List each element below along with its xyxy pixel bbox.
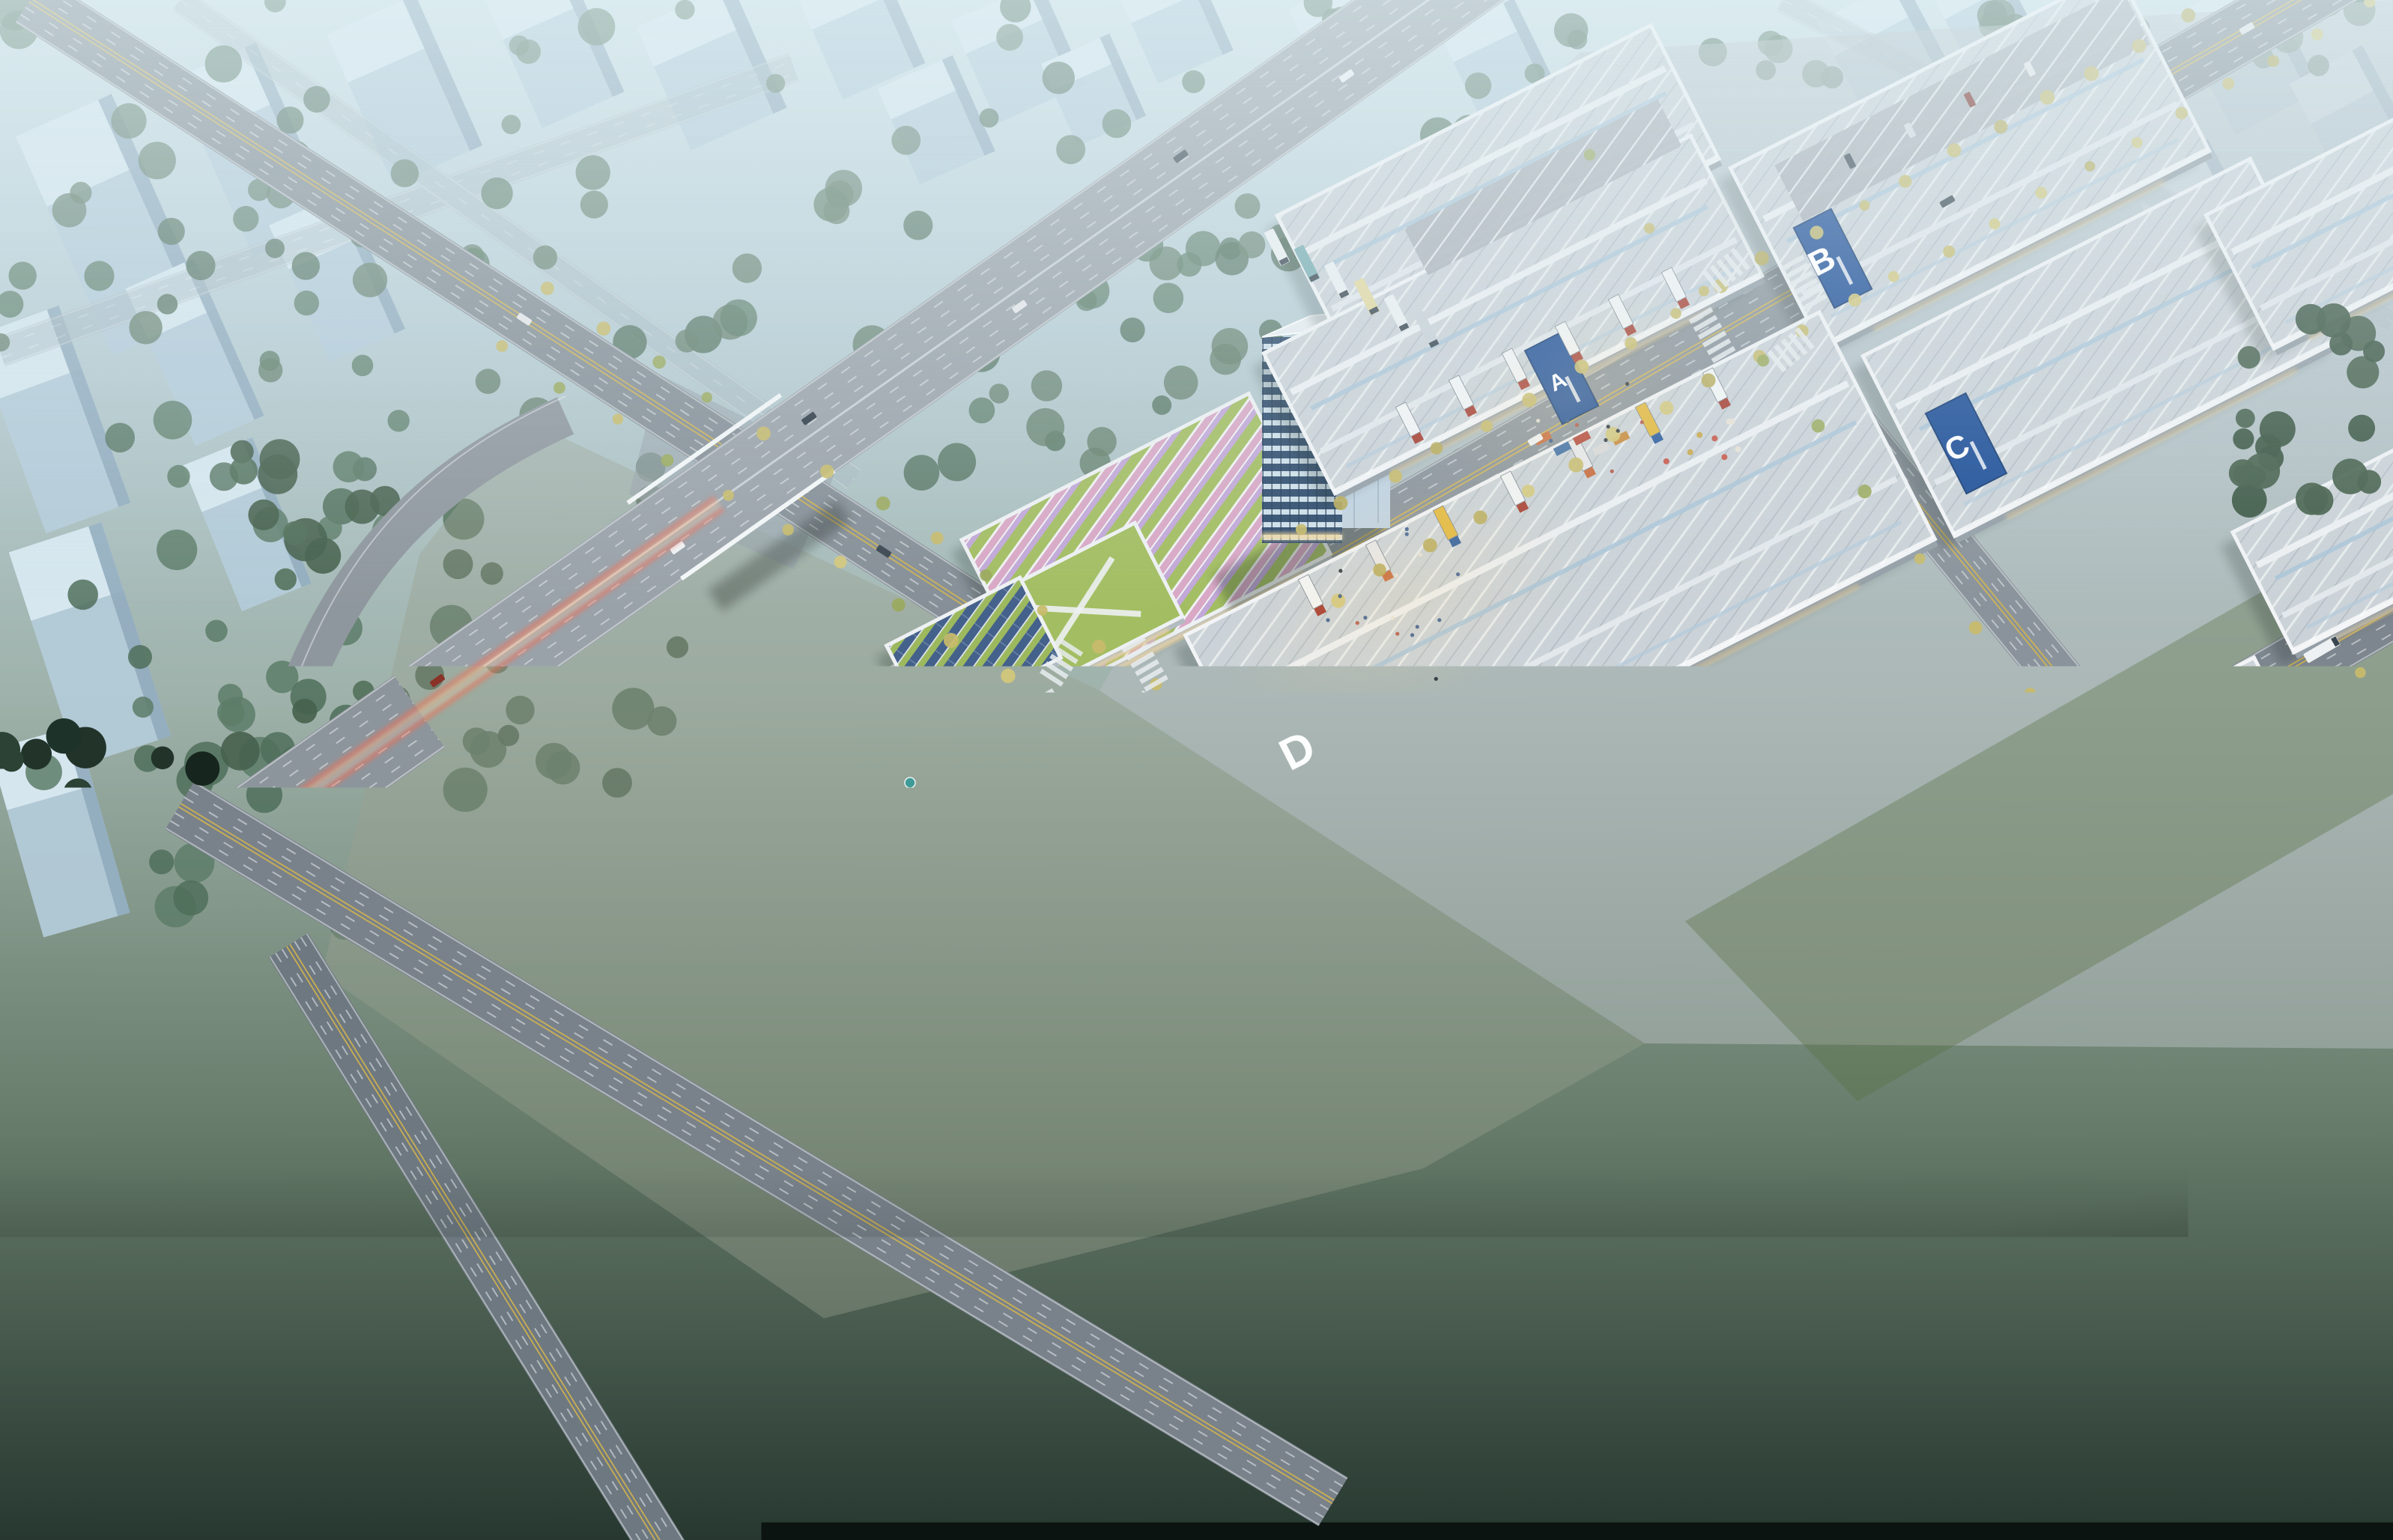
tree	[980, 753, 990, 763]
tree	[341, 938, 356, 953]
tree	[267, 900, 282, 915]
tree	[2023, 859, 2036, 872]
tree	[834, 834, 844, 844]
tree	[2355, 667, 2365, 678]
tree	[1926, 1033, 1947, 1054]
tree	[1656, 1003, 1668, 1015]
tree	[1556, 1030, 1568, 1043]
tree	[1963, 1102, 1991, 1130]
tree	[178, 976, 213, 1011]
tree	[1543, 933, 1553, 943]
tree	[46, 718, 82, 754]
tree	[1980, 1043, 2016, 1079]
tree	[204, 1088, 260, 1144]
tree	[1354, 1107, 1375, 1128]
tree	[1969, 621, 1983, 634]
tree	[255, 1032, 280, 1057]
tree	[1807, 991, 1818, 1001]
tree	[2294, 703, 2306, 715]
tree	[1705, 1040, 1720, 1055]
tree	[213, 987, 241, 1016]
tree	[2075, 831, 2088, 844]
tree	[1595, 968, 1608, 982]
tree	[1860, 954, 1875, 968]
tree	[1642, 1082, 1657, 1097]
tree	[1966, 890, 1980, 903]
tree	[1616, 1067, 1628, 1079]
tree	[218, 684, 243, 709]
tree	[1726, 1138, 1738, 1150]
tree	[63, 778, 92, 807]
tree	[1487, 898, 1499, 909]
tree	[0, 748, 23, 772]
tree	[1828, 1055, 1873, 1100]
tree	[1747, 1018, 1759, 1031]
tree	[905, 777, 915, 788]
tree	[1672, 1098, 1686, 1112]
tree	[2192, 889, 2205, 902]
tree	[413, 982, 425, 995]
tree	[1851, 1126, 1876, 1151]
tree	[1526, 1144, 1541, 1159]
tree	[2246, 957, 2258, 969]
tree	[1914, 921, 1926, 933]
tree	[52, 1061, 104, 1114]
tree	[1001, 669, 1015, 683]
tree	[1873, 1147, 1887, 1160]
tree	[2082, 760, 2096, 773]
tree	[1586, 1113, 1597, 1124]
tree	[2133, 798, 2144, 810]
tree	[128, 645, 152, 669]
tree	[2139, 820, 2152, 833]
tree	[21, 739, 52, 769]
tree	[100, 1091, 137, 1129]
tree	[551, 1067, 563, 1080]
tree	[205, 620, 228, 643]
tree	[2263, 1135, 2302, 1174]
tree	[151, 747, 175, 770]
tree	[17, 1055, 46, 1085]
tree	[133, 697, 154, 718]
tree	[1817, 1108, 1830, 1121]
tree	[2189, 762, 2202, 774]
tree	[1764, 1072, 1775, 1083]
tree	[1446, 954, 1461, 969]
tree	[1092, 640, 1106, 654]
tree	[1884, 1044, 1905, 1066]
tree	[944, 633, 959, 648]
tree	[1387, 922, 1400, 935]
aerial-rendering: A B C D	[0, 0, 2393, 1540]
haze-overlay	[0, 0, 2393, 614]
tree	[2025, 688, 2036, 699]
tree	[2239, 732, 2253, 745]
tree	[133, 1004, 171, 1041]
tree	[22, 817, 51, 846]
tree	[1921, 1070, 1963, 1112]
tree	[1425, 858, 1437, 870]
tree	[1496, 987, 1511, 1002]
tree	[481, 1022, 494, 1035]
tree	[185, 751, 219, 786]
tree	[141, 973, 171, 1003]
rendering-canvas: A B C D	[0, 0, 2393, 1540]
